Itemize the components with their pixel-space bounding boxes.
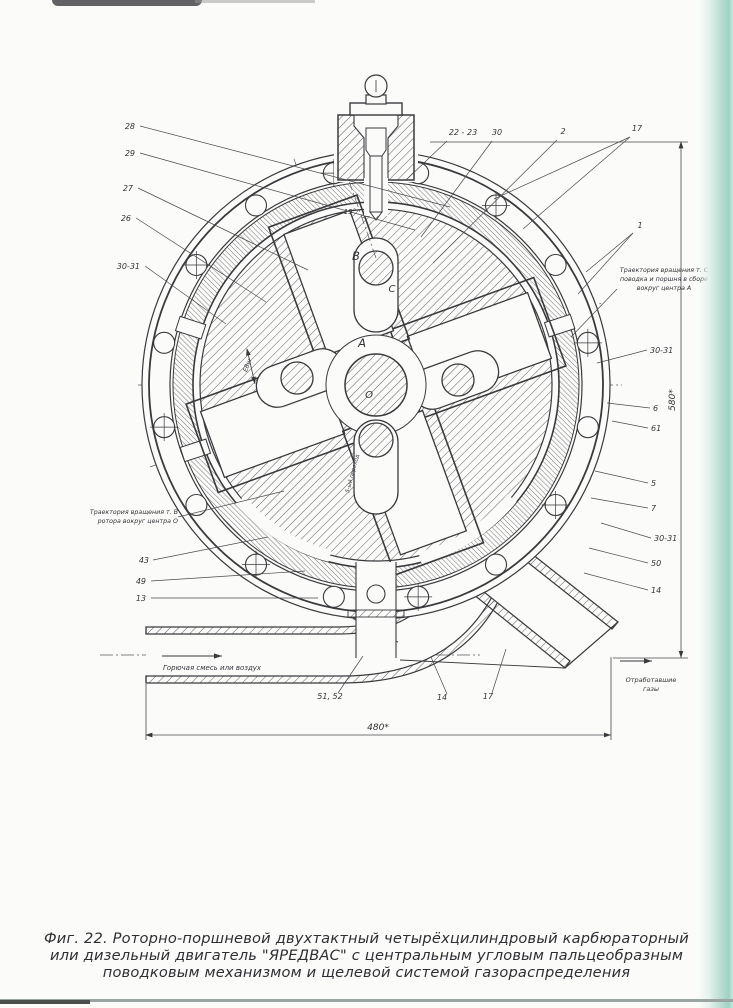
point-B: B: [352, 249, 360, 263]
point-A: A: [357, 336, 366, 350]
page-bottom-edge: [0, 1000, 90, 1004]
bottom-channel: [348, 562, 404, 658]
part-label: 5: [651, 479, 656, 488]
svg-text:Траектория вращения т. В: Траектория вращения т. В: [90, 509, 178, 516]
scanner-edge-artifact: [699, 0, 733, 1008]
flange-bolt: [486, 554, 507, 575]
exhaust-flow-label: Отработавшие: [626, 676, 677, 684]
part-label: 43: [139, 556, 149, 565]
part-label: 6: [653, 404, 658, 413]
leader-line: [612, 421, 648, 428]
part-label: 30-31: [654, 534, 677, 543]
part-label: 30-31: [650, 346, 673, 355]
leader-line: [589, 548, 648, 563]
leader-line: [492, 649, 506, 693]
leader-line: [601, 523, 651, 538]
part-label: 2: [560, 127, 565, 136]
figure-caption-line1: Фиг. 22. Роторно-поршневой двухтактный ч…: [0, 930, 733, 947]
point-C: C: [389, 284, 396, 295]
point-O: O: [365, 390, 373, 401]
height-dimension: 580*: [668, 389, 678, 411]
part-label: 29: [125, 149, 135, 158]
svg-text:вокруг центра А: вокруг центра А: [637, 285, 692, 292]
figure-caption-line3: поводковым механизмом и щелевой системой…: [0, 964, 733, 981]
svg-text:Траектория вращения т. С: Траектория вращения т. С: [620, 267, 709, 274]
flange-bolt: [545, 254, 566, 275]
part-label: 14: [437, 693, 447, 702]
figure-caption-line2: или дизельный двигатель "ЯРЕДВАС" с цент…: [0, 947, 733, 964]
leader-line: [523, 137, 630, 229]
part-label: 30-31: [117, 262, 140, 271]
scanned-page: 480* 580*: [0, 0, 733, 1008]
flange-bolt: [245, 195, 266, 216]
part-label: 17: [483, 692, 494, 701]
width-dimension: 480*: [367, 723, 389, 733]
page-bottom-edge: [0, 999, 733, 1002]
part-label: 1: [637, 221, 642, 230]
part-label: 22 - 23: [449, 128, 477, 137]
leader-line: [591, 498, 648, 508]
engine-drawing: 480* 580*: [0, 0, 733, 1008]
part-label: 28: [125, 122, 135, 131]
part-label: 51, 52: [317, 692, 342, 701]
flange-bolt: [323, 586, 344, 607]
part-label: 49: [136, 577, 146, 586]
exhaust-flow-label: газы: [643, 685, 659, 693]
leader-line: [578, 233, 633, 294]
part-label: 61: [651, 424, 661, 433]
leader-line: [584, 573, 648, 590]
flange-bolt: [154, 332, 175, 353]
svg-text:ротора вокруг центра О: ротора вокруг центра О: [97, 518, 178, 525]
intake-flow-label: Горючая смесь или воздух: [163, 664, 262, 672]
part-label: 17: [632, 124, 643, 133]
flange-bolt: [577, 417, 598, 438]
part-label: 30: [492, 128, 502, 137]
leader-line: [595, 471, 648, 483]
part-label: 27: [123, 184, 134, 193]
part-label: 50: [651, 559, 661, 568]
part-label: 13: [136, 594, 146, 603]
part-label: 7: [651, 504, 657, 513]
leader-line: [607, 403, 650, 408]
svg-text:поводка и поршня в сборе: поводка и поршня в сборе: [620, 275, 708, 283]
part-label: 26: [121, 214, 131, 223]
part-label: 14: [651, 586, 661, 595]
leader-line: [494, 137, 630, 199]
